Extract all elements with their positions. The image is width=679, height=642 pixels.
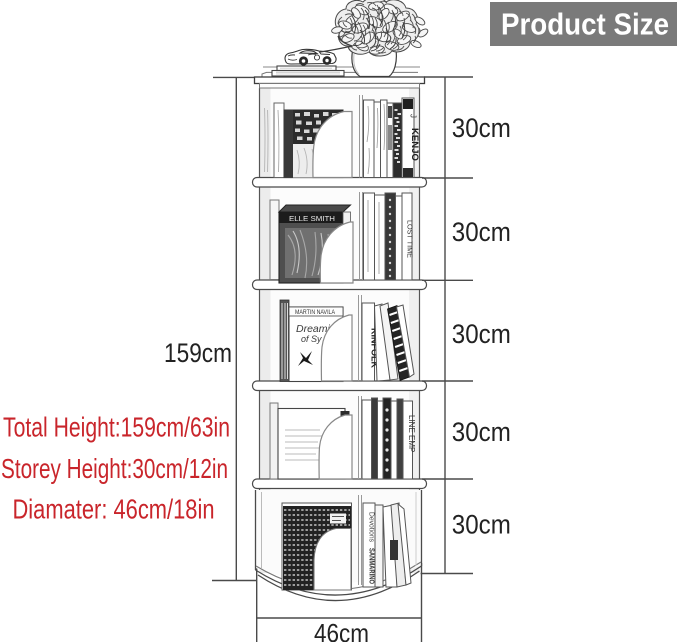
svg-text:ELLE SMITH: ELLE SMITH <box>289 214 335 223</box>
svg-text:MARTIN NAVILA: MARTIN NAVILA <box>295 310 335 316</box>
svg-text:30cm: 30cm <box>452 113 511 143</box>
svg-text:J: J <box>409 114 418 118</box>
svg-text:46cm: 46cm <box>314 618 369 642</box>
svg-text:Devotions: Devotions <box>368 512 375 542</box>
svg-text:of Sy: of Sy <box>301 334 322 344</box>
svg-text:159cm: 159cm <box>164 338 232 368</box>
svg-text:30cm: 30cm <box>452 217 511 247</box>
svg-text:KENJO: KENJO <box>409 128 420 161</box>
svg-text:Storey Height:30cm/12in: Storey Height:30cm/12in <box>1 453 228 484</box>
svg-text:Product Size: Product Size <box>501 7 669 42</box>
svg-text:LOST TIME: LOST TIME <box>406 220 415 258</box>
svg-text:SANMARINO: SANMARINO <box>368 548 375 584</box>
svg-text:30cm: 30cm <box>452 509 511 539</box>
svg-text:Total Height:159cm/63in: Total Height:159cm/63in <box>3 412 230 443</box>
svg-text:30cm: 30cm <box>452 417 511 447</box>
svg-text:30cm: 30cm <box>452 319 511 349</box>
svg-text:Diamater: 46cm/18in: Diamater: 46cm/18in <box>13 493 215 524</box>
svg-text:LINE EMP: LINE EMP <box>407 415 416 452</box>
